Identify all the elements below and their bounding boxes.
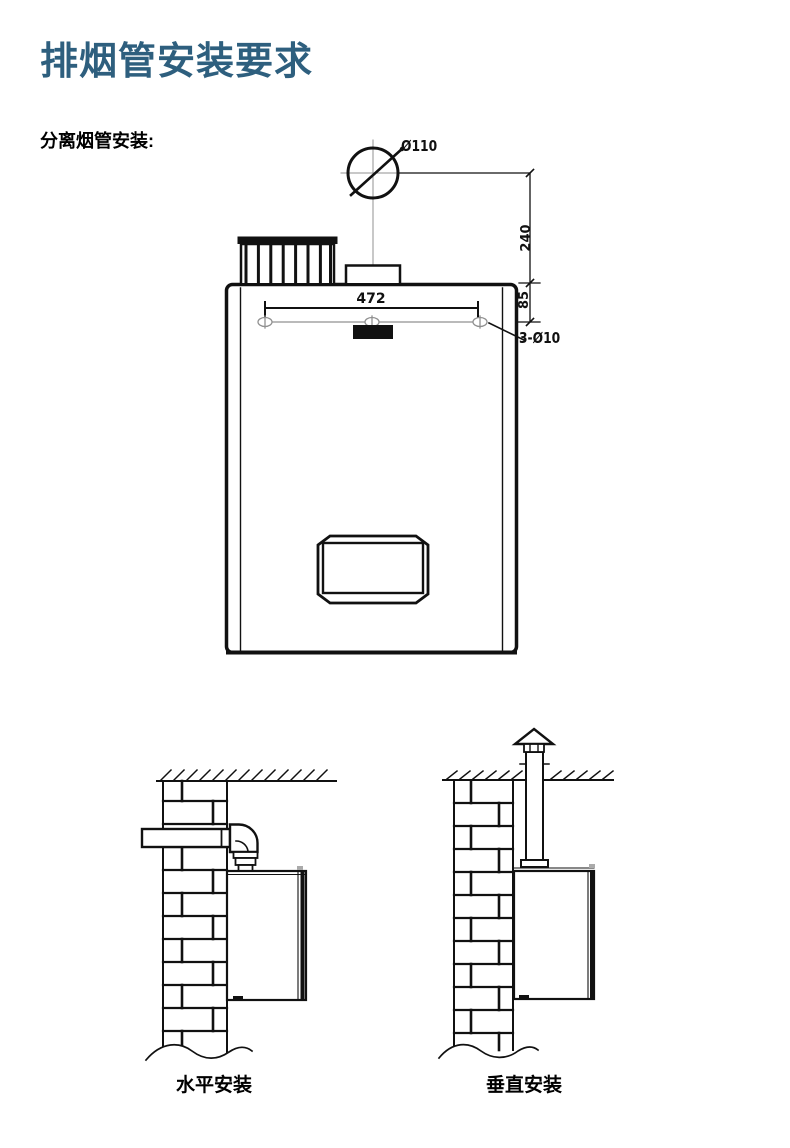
boiler-side-right [514,864,595,1000]
finned-vent [238,237,338,284]
ceiling-left [157,770,336,781]
dim-flue-height-label: 240 [519,222,533,254]
manual-page: 排烟管安装要求 分离烟管安装: Ø110 472 240 85 3-Ø10 水平… [0,0,790,1148]
vertical-install-diagram [439,729,613,1072]
boiler-side-left [227,866,306,1001]
brick-wall-right [454,781,513,1054]
horizontal-exhaust-pipe [142,829,230,847]
wall-break-right [439,1045,538,1072]
flue-diameter-leader [351,148,403,195]
rain-cap [515,729,553,752]
dim-flue-diameter-label: Ø110 [401,137,437,155]
vertical-exhaust-pipe [520,752,549,867]
rating-plate [353,325,393,339]
flue-stub [346,266,400,284]
section-label: 分离烟管安装: [40,127,154,153]
technical-drawing [0,0,790,1148]
wall-break-left [146,1045,252,1072]
brick-wall-left [163,781,227,1054]
dim-mounting-holes-label: 3-Ø10 [519,329,560,347]
vertical-install-caption: 垂直安装 [464,1070,584,1097]
elbow-fitting [230,825,258,872]
horizontal-install-caption: 水平安装 [154,1070,274,1097]
dim-hole-offset-label: 85 [517,288,531,312]
boiler-front-diagram [227,140,541,653]
horizontal-install-diagram [142,770,336,1072]
page-title: 排烟管安装要求 [40,30,313,85]
dim-hole-spacing-label: 472 [341,291,401,307]
control-panel [318,536,428,603]
